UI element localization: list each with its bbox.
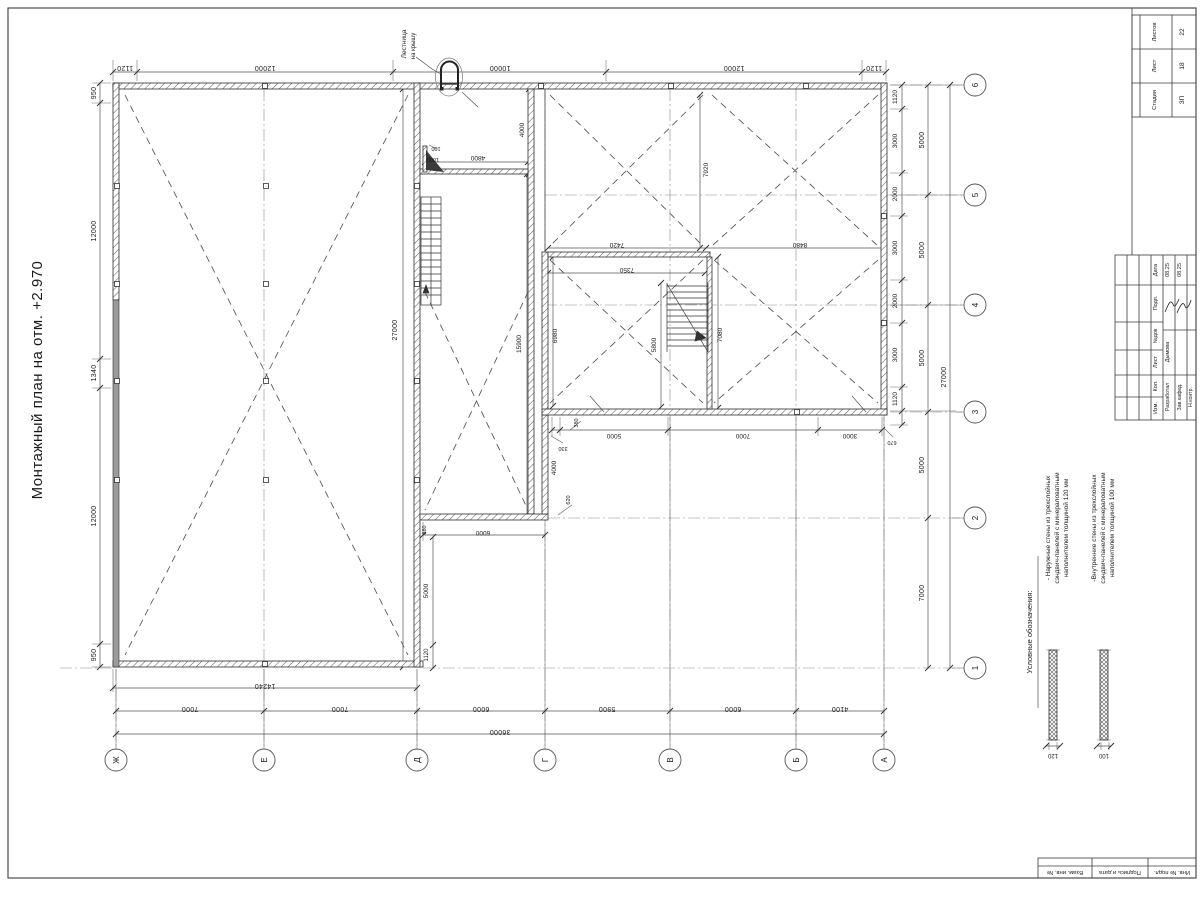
legend-item2-line3: наполнителем толщиной 100 мм [1108, 478, 1116, 577]
dim-label: 7350 [619, 266, 634, 273]
wall-solid-segment [113, 89, 545, 667]
legend-item1-line1: - Наружные стены из трехслойных [1044, 475, 1052, 580]
stamp-col-list: Лист [1153, 356, 1159, 368]
ladder-note-line1: Лестница [401, 29, 408, 58]
stamp-list-label: Лист [1152, 59, 1158, 72]
dim-label: 3000 [892, 240, 899, 255]
axis-letter: Д [413, 757, 422, 763]
dim-label: 1340 [91, 365, 98, 382]
dim-label: 4000 [551, 460, 558, 475]
stair-right-section [667, 283, 708, 352]
text-layer: Монтажный план на отм. +2.970 Лестница н… [29, 23, 1194, 875]
dim-label: 4100 [832, 705, 849, 712]
roof-ladder [416, 57, 463, 96]
dim-label: 2000 [892, 186, 899, 201]
stamp-list-value: 18 [1179, 62, 1186, 70]
dim-label: 14240 [255, 682, 276, 689]
dim-label: 12000 [255, 64, 276, 71]
walls [113, 83, 887, 667]
dim-label: 3000 [892, 347, 899, 362]
title-block [1038, 15, 1196, 878]
frame-cell-podpis: Подпись и дата [1098, 869, 1140, 875]
dim-label: 3000 [842, 432, 857, 439]
dim-label: 5800 [651, 337, 658, 352]
dim-label: 27000 [392, 320, 399, 341]
dim-label: 5000 [919, 132, 926, 149]
dim-label: 950 [91, 649, 98, 662]
axis-number: 1 [971, 665, 980, 670]
dim-label: 7000 [735, 432, 750, 439]
legend-title: Условные обозначения: [1025, 590, 1034, 673]
stamp-r2-role: Зав.кафед. [1177, 384, 1183, 411]
roof-bracing [125, 95, 878, 655]
dim-label: 670 [887, 439, 896, 445]
dim-label: 12000 [91, 506, 98, 527]
axis-letter: А [880, 757, 889, 763]
stamp-col-ndok: №док [1153, 328, 1159, 343]
frame-cell-vzam: Взам. инв. № [1047, 869, 1083, 875]
dim-label: 5000 [606, 432, 621, 439]
dim-label: 1120 [892, 392, 899, 406]
sheet-frame [8, 8, 1196, 878]
dim-label: 7080 [717, 327, 724, 342]
axis-letter: Е [260, 757, 269, 762]
axis-number: 4 [971, 302, 980, 307]
dim-label: 8480 [792, 241, 807, 248]
extension-lines [92, 60, 1111, 750]
axis-centerlines [60, 85, 964, 749]
axis-letter: Б [792, 757, 801, 762]
legend-item1-line3: наполнителем толщиной 120 мм [1062, 478, 1070, 577]
plan-canvas: Монтажный план на отм. +2.970 Лестница н… [0, 0, 1200, 900]
dim-label: 100 [431, 145, 440, 151]
axis-letter: Ж [112, 756, 121, 764]
sheet-title: Монтажный план на отм. +2.970 [29, 261, 46, 500]
stamp-col-data: Дата [1153, 263, 1159, 276]
stamp-r1-name: Дымова [1165, 341, 1171, 362]
dim-label: 330 [558, 445, 567, 451]
dim-label: 7000 [182, 705, 199, 712]
dim-label: 5000 [919, 350, 926, 367]
dim-label: 5000 [423, 583, 430, 598]
stamp-r1-role: Разработал [1165, 383, 1171, 411]
dim-label: 950 [91, 87, 98, 100]
stamp-r3-role: Н.контр. [1188, 387, 1194, 407]
dim-label: 1000 [427, 156, 439, 162]
dim-label: 880 [422, 525, 428, 534]
dim-label: 6000 [475, 529, 490, 536]
legend-item1-line2: сэндвич-панелей с минераловатным [1053, 472, 1061, 584]
axis-number: 5 [971, 192, 980, 197]
dim-label: 7000 [919, 585, 926, 602]
stamp-col-izm: Изм. [1153, 402, 1159, 414]
dim-label: 5900 [599, 705, 616, 712]
axis-letter: В [666, 757, 675, 762]
dim-label: 1120 [866, 64, 882, 71]
legend-item2-line2: сэндвич-панелей с минераловатным [1099, 472, 1107, 584]
dim-label: 6000 [725, 705, 742, 712]
stamp-stadiya-label: Стадия [1152, 90, 1158, 110]
dim-label: 2000 [892, 293, 899, 308]
dim-label: 7420 [609, 241, 624, 248]
legend-item1-dim: 120 [1047, 752, 1058, 758]
legend-item2-dim: 100 [1098, 752, 1109, 758]
dim-label: 12000 [91, 221, 98, 242]
stamp-r2-date: 08.25 [1177, 263, 1183, 277]
drawing-sheet: Монтажный план на отм. +2.970 Лестница н… [0, 0, 1200, 900]
dim-label: 5000 [919, 242, 926, 259]
dim-label: 12000 [724, 64, 745, 71]
dim-label: 36000 [490, 728, 511, 735]
stamp-col-podp: Подп. [1153, 295, 1159, 310]
dim-label: 7000 [332, 705, 349, 712]
stamp-col-kol: Кол. [1153, 380, 1159, 391]
legend-item2-line1: -Внутренние стены из трехслойных [1090, 474, 1098, 582]
stamp-stadiya-value: ЗП [1179, 95, 1186, 104]
frame-cell-inv: Инв. № подл. [1154, 869, 1190, 875]
dim-label: 620 [566, 495, 572, 504]
dim-label: 15900 [516, 335, 523, 353]
dim-label: 5000 [919, 457, 926, 474]
axis-number: 2 [971, 515, 980, 520]
legend-symbols [1038, 556, 1108, 740]
stair-corridor [421, 197, 441, 305]
dim-label: 7920 [703, 162, 710, 177]
axis-number: 3 [971, 409, 980, 414]
stamp-listov-value: 22 [1179, 28, 1186, 36]
dim-label: 1120 [424, 648, 430, 662]
dim-label: 6980 [552, 328, 559, 343]
dim-label: 10000 [490, 64, 511, 71]
axis-number: 6 [971, 82, 980, 87]
dim-label: 3000 [892, 133, 899, 148]
dim-label: 6000 [473, 705, 490, 712]
dim-label: 1120 [892, 90, 899, 104]
axis-letter: Г [541, 757, 550, 762]
dim-label: 380 [574, 418, 580, 427]
dim-label: 4000 [519, 122, 526, 137]
stamp-listov-label: Листов [1152, 23, 1158, 42]
dim-label: 1120 [117, 64, 133, 71]
dim-label: 27000 [941, 367, 948, 388]
dim-label: 4800 [470, 154, 485, 161]
ladder-note-line2: на крышу [411, 33, 417, 59]
stamp-r1-date: 08.25 [1165, 263, 1171, 277]
